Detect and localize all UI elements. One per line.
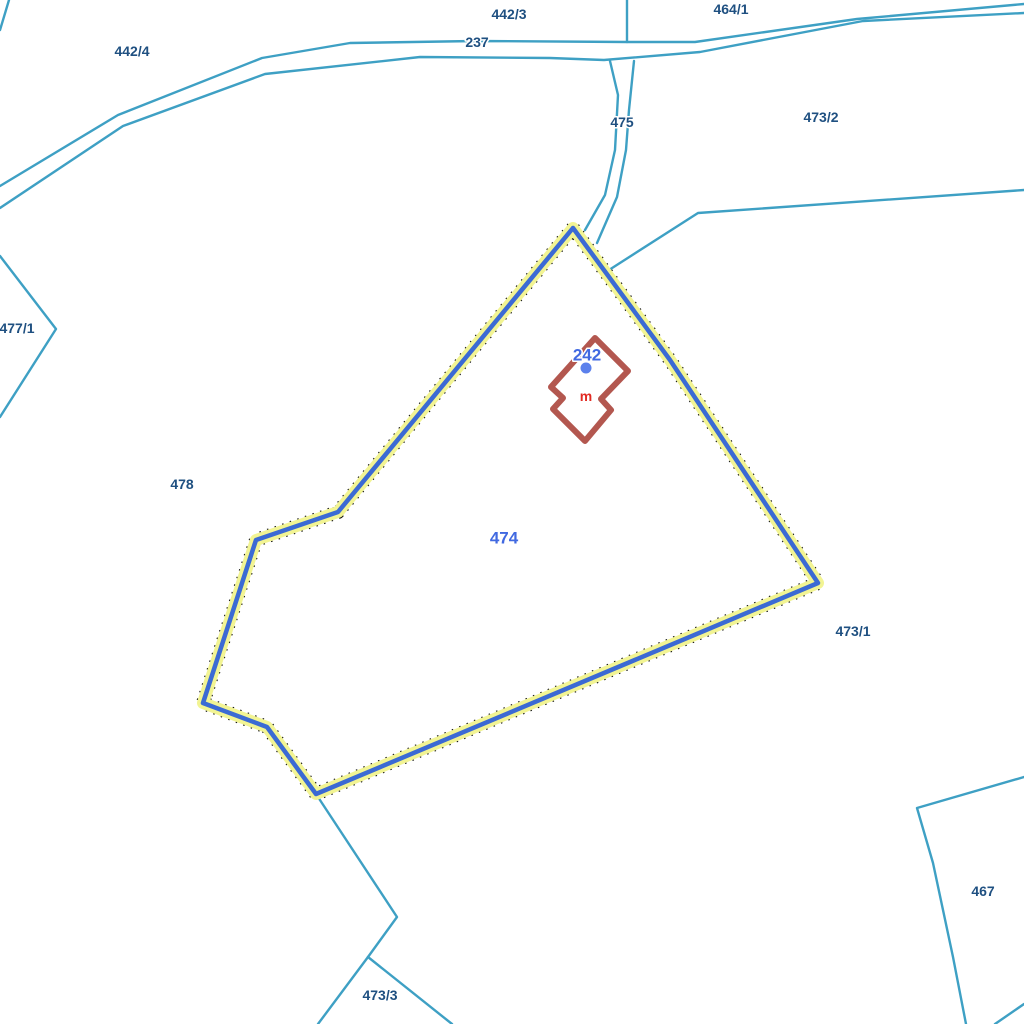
parcel-label-237[interactable]: 237 (465, 34, 489, 50)
parcel-label-467[interactable]: 467 (971, 883, 995, 899)
parcel-label-442-3[interactable]: 442/3 (491, 6, 526, 22)
boundary-473-3-north (316, 794, 397, 957)
building-point-marker (581, 363, 592, 374)
boundary-473-2 (609, 190, 1024, 270)
boundary-467 (917, 777, 1024, 1024)
cadastral-map[interactable]: 442/4442/3237464/1475473/2477/1478473/14… (0, 0, 1024, 1024)
parcel-label-473-3[interactable]: 473/3 (362, 987, 397, 1003)
selected-parcel-halo (203, 228, 818, 794)
parcel-label-242[interactable]: 242 (573, 346, 601, 365)
corner-line-top-left (0, 0, 9, 30)
boundary-467-corner (995, 1004, 1024, 1024)
cadastral-map-viewport[interactable]: 442/4442/3237464/1475473/2477/1478473/14… (0, 0, 1024, 1024)
parcel-label-m[interactable]: m (580, 388, 592, 404)
road-237-upper (0, 4, 1024, 186)
parcel-label-477-1[interactable]: 477/1 (0, 320, 35, 336)
parcel-label-473-2[interactable]: 473/2 (803, 109, 838, 125)
parcel-label-475[interactable]: 475 (610, 114, 634, 130)
parcel-label-442-4[interactable]: 442/4 (114, 43, 149, 59)
parcel-label-478[interactable]: 478 (170, 476, 194, 492)
parcel-label-464-1[interactable]: 464/1 (713, 1, 748, 17)
parcel-label-473-1[interactable]: 473/1 (835, 623, 870, 639)
boundary-473-3-west (318, 957, 368, 1024)
parcel-label-474[interactable]: 474 (490, 529, 519, 548)
boundary-477-1 (0, 256, 56, 417)
